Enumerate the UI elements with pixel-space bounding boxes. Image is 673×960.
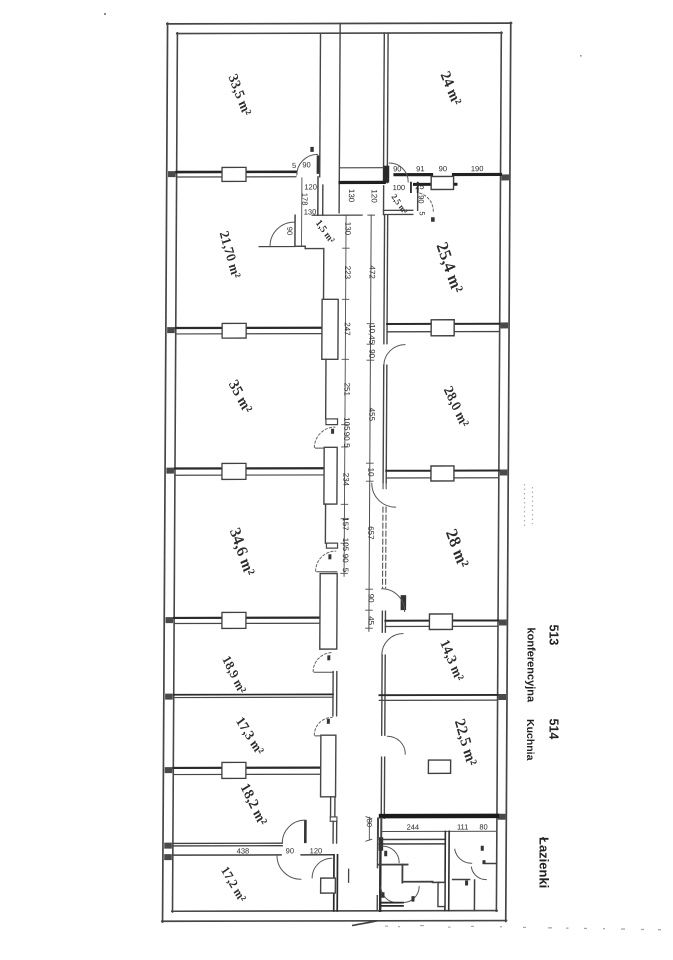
svg-text:5: 5: [292, 161, 296, 170]
svg-text:178: 178: [300, 193, 309, 206]
svg-text:90: 90: [366, 594, 375, 603]
svg-text:130: 130: [347, 189, 356, 203]
svg-text:90: 90: [417, 195, 426, 203]
svg-text:90: 90: [341, 554, 350, 563]
svg-text:120: 120: [310, 846, 323, 855]
svg-text:25: 25: [415, 182, 424, 191]
svg-text:5: 5: [418, 211, 427, 215]
svg-text:80: 80: [479, 822, 487, 831]
svg-text:244: 244: [407, 823, 420, 832]
svg-text:472: 472: [368, 266, 377, 280]
svg-text:90: 90: [342, 432, 351, 441]
svg-text:90: 90: [439, 164, 447, 173]
svg-text:120: 120: [370, 189, 379, 203]
svg-text:5: 5: [342, 443, 351, 448]
svg-text:513: 513: [547, 625, 561, 646]
svg-text:100: 100: [393, 183, 406, 192]
svg-text:90: 90: [286, 846, 294, 855]
svg-text:438: 438: [237, 846, 250, 855]
svg-text:Kuchnia: Kuchnia: [524, 719, 536, 761]
svg-text:90: 90: [367, 349, 376, 358]
svg-text:130: 130: [343, 222, 352, 236]
svg-text:130: 130: [304, 207, 317, 216]
svg-text:10,45: 10,45: [367, 324, 376, 345]
svg-text:konferencyjna: konferencyjna: [525, 628, 537, 703]
svg-text:5: 5: [341, 568, 350, 573]
svg-text:105: 105: [341, 538, 350, 552]
svg-text:90: 90: [285, 227, 294, 235]
svg-text:157: 157: [341, 517, 350, 531]
svg-text:657: 657: [366, 526, 375, 540]
svg-text:514: 514: [547, 719, 561, 740]
svg-text:251: 251: [342, 383, 351, 397]
svg-text:223: 223: [343, 266, 352, 280]
svg-text:105: 105: [342, 417, 351, 431]
svg-text:111: 111: [457, 823, 468, 832]
svg-text:234: 234: [341, 473, 350, 487]
svg-text:190: 190: [471, 164, 484, 173]
svg-text:90: 90: [302, 160, 310, 169]
svg-text:10: 10: [366, 468, 375, 477]
svg-text:45: 45: [367, 616, 376, 625]
svg-text:247: 247: [343, 322, 352, 336]
svg-text:90: 90: [393, 164, 401, 173]
svg-text:Łazienki: Łazienki: [537, 837, 552, 888]
svg-text:455: 455: [367, 408, 376, 422]
svg-text:120: 120: [304, 183, 317, 192]
svg-text:91: 91: [416, 164, 424, 173]
